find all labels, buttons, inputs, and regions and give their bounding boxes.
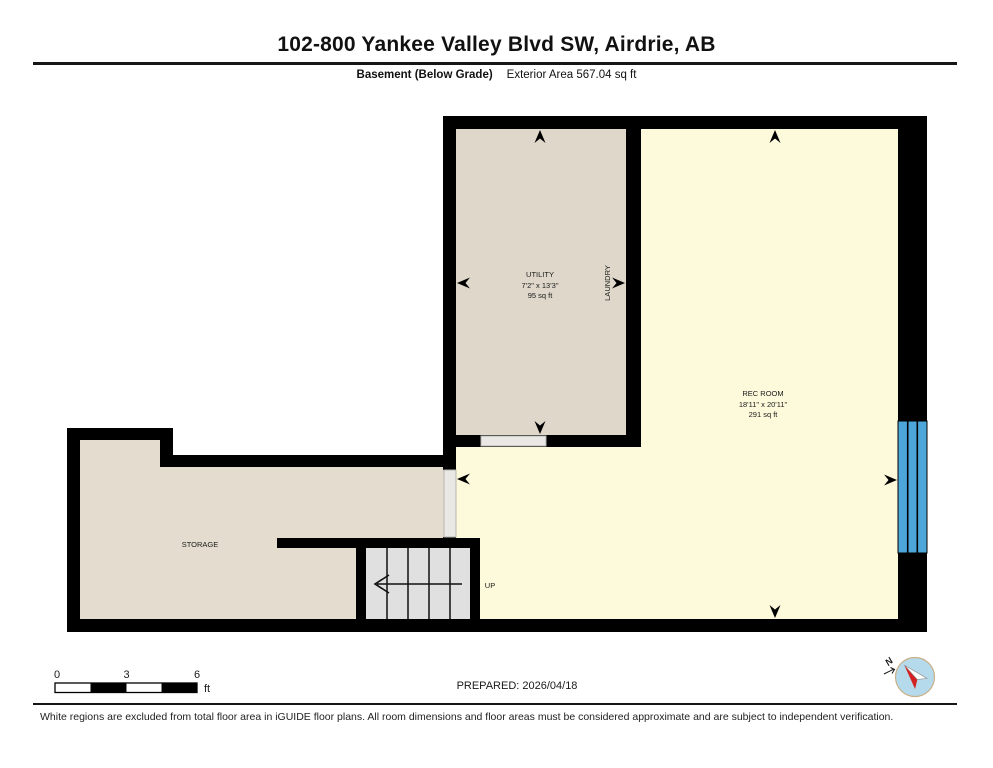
scale-tick-3: 3 [123,669,129,681]
wall-stairs-right [470,548,480,619]
wall-utility-rec-divider [626,116,641,447]
laundry-label: LAUNDRY [603,265,612,301]
scale-bar: 0 3 6 ft [54,669,210,695]
utility-room-name: UTILITY [526,270,554,279]
door-opening-storage [444,470,456,537]
door-opening-utility [481,436,546,446]
wall-bottom [67,619,927,632]
floor-plan-canvas: UTILITY 7'2" x 13'3" 95 sq ft LAUNDRY RE… [0,0,993,768]
footer-divider [33,703,957,705]
scale-tick-0: 0 [54,669,60,681]
window-right-wall [898,421,927,553]
rec-room-area: 291 sq ft [749,410,779,419]
rec-room-dimensions: 18'11" x 20'11" [739,400,788,409]
wall-storage-left [67,428,80,626]
wall-right [898,116,927,632]
disclaimer-text: White regions are excluded from total fl… [40,711,970,723]
window-glass [898,421,927,553]
wall-storage-top-right [160,455,444,467]
rec-room-name: REC ROOM [742,389,783,398]
compass-icon: N [883,655,934,696]
storage-room-name: STORAGE [182,540,219,549]
scale-unit-label: ft [204,683,210,695]
utility-room-area: 95 sq ft [528,291,554,300]
scale-tick-6: 6 [194,669,200,681]
utility-room-dimensions: 7'2" x 13'3" [522,281,559,290]
scale-bar-segment-2 [162,683,198,693]
compass-north-label: N [883,655,896,669]
wall-stairs-left [356,548,366,619]
wall-left-upper-block [443,116,456,470]
wall-door-stub [443,537,456,548]
scale-bar-segment-1 [91,683,127,693]
wall-storage-top-left [67,428,173,440]
wall-top [443,116,927,129]
stairs-up-label: UP [485,581,495,590]
prepared-date-label: PREPARED: 2026/04/18 [457,680,578,692]
